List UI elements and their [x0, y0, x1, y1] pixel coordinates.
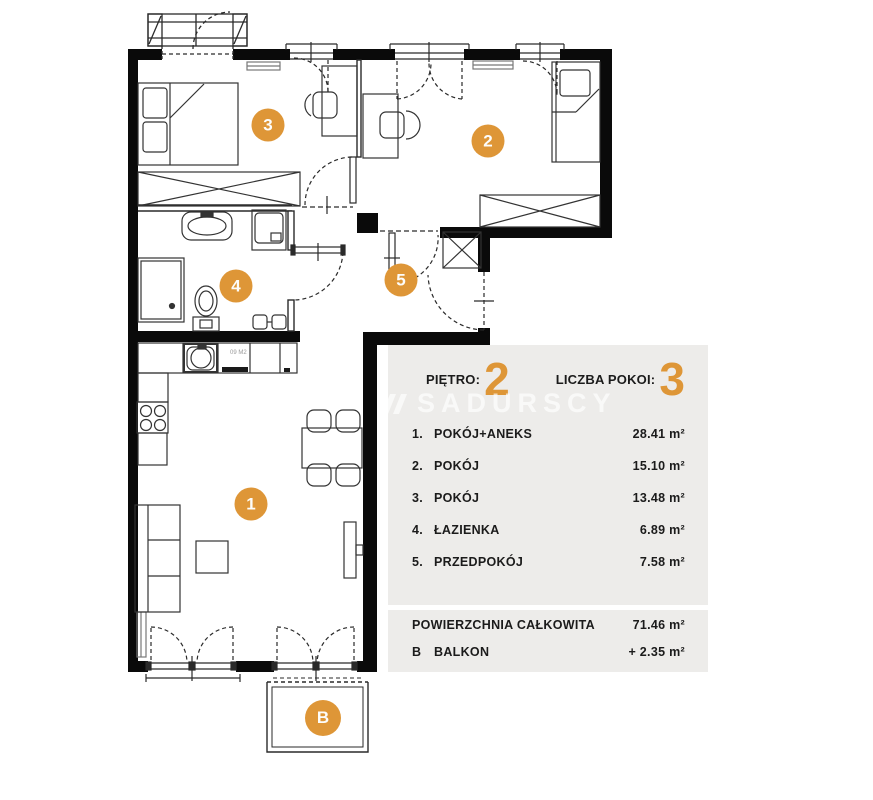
room-row-area: 15.10 m²: [633, 459, 685, 473]
chair: [336, 464, 360, 486]
balcony-row-label: BALKON: [434, 645, 628, 659]
room-row: 1. POKÓJ+ANEKS 28.41 m²: [388, 427, 708, 459]
chair: [336, 410, 360, 432]
shower: [138, 258, 184, 322]
bathroom-fixtures: [138, 210, 286, 331]
desk-chair: [380, 112, 404, 138]
room-row-area: 6.89 m²: [640, 523, 685, 537]
room-row-area: 7.58 m²: [640, 555, 685, 569]
room-row: 2. POKÓJ 15.10 m²: [388, 459, 708, 491]
desk: [322, 66, 357, 136]
pillow: [560, 70, 590, 96]
pillow: [143, 122, 167, 152]
room-row-num: 1.: [412, 427, 434, 441]
sofa: [135, 505, 180, 612]
floor-label: PIĘTRO:: [426, 372, 480, 387]
room-row-name: PRZEDPOKÓJ: [434, 555, 640, 569]
balcony-row-id: B: [412, 645, 434, 659]
coffee-table: [196, 541, 228, 573]
room3-balcony-door: [148, 12, 247, 60]
balcony-row-value: + 2.35 m²: [628, 645, 685, 659]
interior-doors: [291, 157, 494, 330]
room-row: 5. PRZEDPOKÓJ 7.58 m²: [388, 555, 708, 587]
room-row-area: 13.48 m²: [633, 491, 685, 505]
info-panel: PIĘTRO: 2 LICZBA POKOI: 3 1. POKÓJ+ANEKS…: [388, 345, 708, 605]
room-row-name: POKÓJ: [434, 459, 633, 473]
room-marker-3: 3: [252, 109, 285, 142]
room-row-name: ŁAZIENKA: [434, 523, 640, 537]
dining-table: [302, 428, 362, 468]
floorplan-page: 09 M2 1 2 3 4 5 B: [0, 0, 873, 800]
room-marker-4: 4: [220, 270, 253, 303]
total-area-label: POWIERZCHNIA CAŁKOWITA: [412, 618, 633, 632]
total-area-row: POWIERZCHNIA CAŁKOWITA 71.46 m²: [388, 618, 708, 645]
room-row: 4. ŁAZIENKA 6.89 m²: [388, 523, 708, 555]
room-row-num: 4.: [412, 523, 434, 537]
panel-header: PIĘTRO: 2 LICZBA POKOI: 3: [388, 345, 708, 399]
balcony-marker: B: [305, 700, 341, 736]
room-row-name: POKÓJ: [434, 491, 633, 505]
desk-chair: [313, 92, 337, 118]
balcony-row: B BALKON + 2.35 m²: [388, 645, 708, 672]
room-row-num: 5.: [412, 555, 434, 569]
washing-machine: [252, 210, 286, 250]
double-bed: [138, 83, 238, 165]
kitchen: 09 M2: [137, 343, 297, 465]
room-marker-1: 1: [235, 488, 268, 521]
room3-furniture: [138, 66, 357, 206]
pillow: [143, 88, 167, 118]
room-row-area: 28.41 m²: [633, 427, 685, 441]
room-row-num: 3.: [412, 491, 434, 505]
chair: [307, 410, 331, 432]
room-marker-2: 2: [472, 125, 505, 158]
floor-value: 2: [484, 359, 510, 399]
kitchen-label: 09 M2: [230, 350, 247, 356]
room-row-num: 2.: [412, 459, 434, 473]
totals-panel: POWIERZCHNIA CAŁKOWITA 71.46 m² B BALKON…: [388, 610, 708, 672]
room-row-name: POKÓJ+ANEKS: [434, 427, 633, 441]
room-list: 1. POKÓJ+ANEKS 28.41 m² 2. POKÓJ 15.10 m…: [388, 427, 708, 587]
chair: [307, 464, 331, 486]
room-count-value: 3: [659, 359, 685, 399]
living-balcony-doors: [146, 627, 357, 682]
windows: [286, 42, 564, 99]
room-row: 3. POKÓJ 13.48 m²: [388, 491, 708, 523]
total-area-value: 71.46 m²: [633, 618, 685, 632]
room-count-label: LICZBA POKOI:: [556, 372, 656, 387]
tv: [344, 522, 356, 578]
room-marker-5: 5: [385, 264, 418, 297]
